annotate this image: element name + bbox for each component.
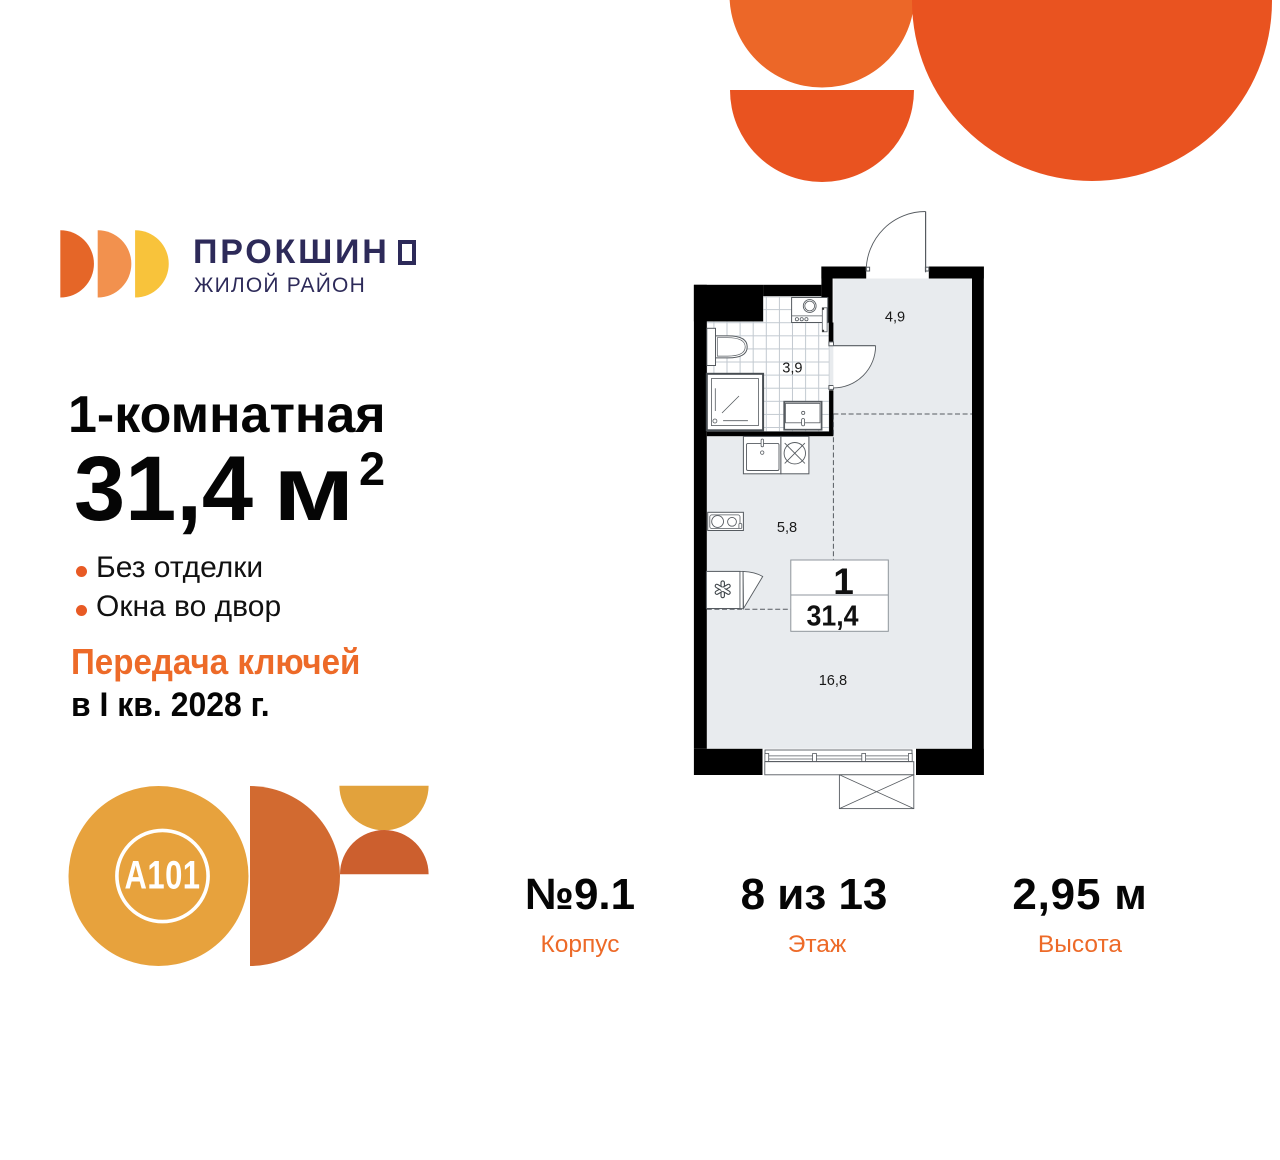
svg-text:16,8: 16,8 [819, 673, 847, 689]
svg-text:5,8: 5,8 [777, 520, 797, 536]
svg-text:31,4: 31,4 [807, 601, 859, 633]
svg-text:1: 1 [833, 561, 854, 602]
svg-text:3,9: 3,9 [782, 361, 802, 377]
svg-text:4,9: 4,9 [885, 310, 905, 326]
svg-text:A101: A101 [124, 852, 200, 898]
